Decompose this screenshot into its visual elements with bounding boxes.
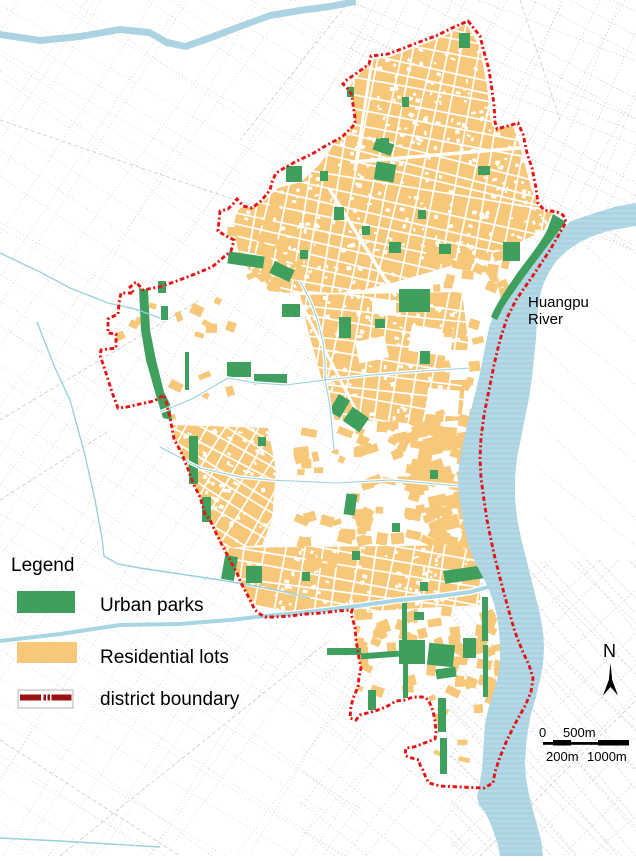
svg-text:1000m: 1000m bbox=[587, 749, 627, 764]
svg-text:0: 0 bbox=[539, 725, 546, 740]
svg-text:Residential lots: Residential lots bbox=[100, 647, 229, 668]
svg-text:N: N bbox=[603, 641, 616, 661]
svg-text:200m: 200m bbox=[546, 749, 579, 764]
svg-text:Urban parks: Urban parks bbox=[100, 595, 204, 616]
svg-text:Legend: Legend bbox=[11, 555, 74, 576]
svg-text:district boundary: district boundary bbox=[100, 689, 240, 710]
svg-text:500m: 500m bbox=[563, 725, 596, 740]
svg-text:Huangpu: Huangpu bbox=[528, 294, 589, 311]
svg-text:River: River bbox=[528, 311, 563, 328]
